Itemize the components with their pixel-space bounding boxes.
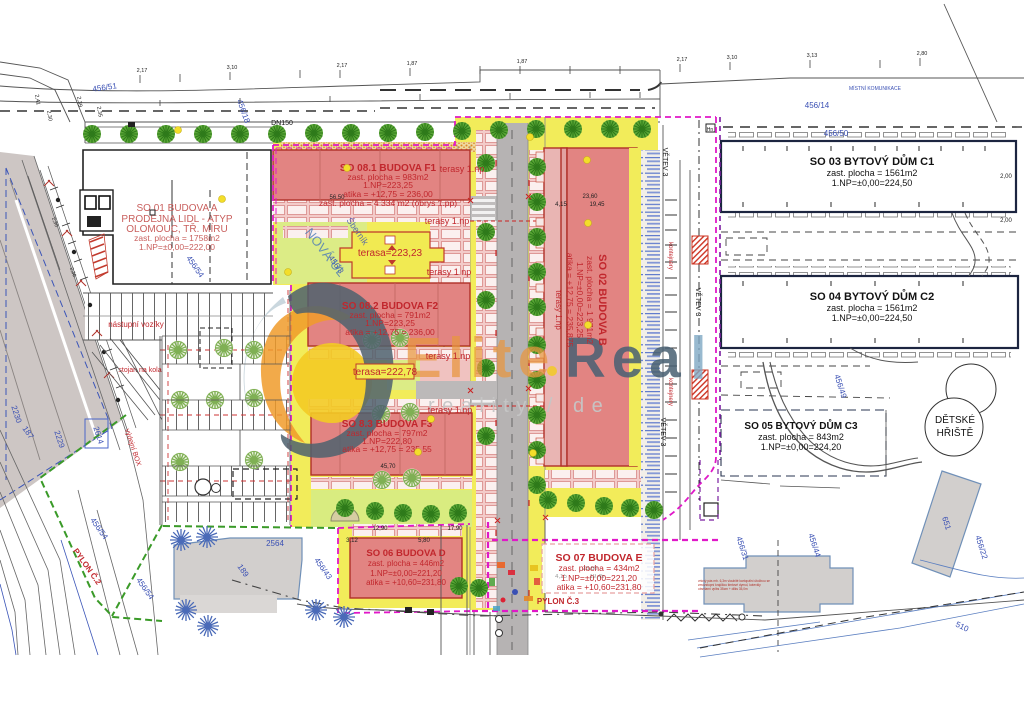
svg-text:3,10: 3,10 (227, 65, 238, 71)
svg-text:nástupní vozíky: nástupní vozíky (108, 320, 164, 329)
svg-text:Hn: Hn (707, 127, 714, 133)
svg-text:2,17: 2,17 (137, 68, 148, 74)
svg-text:3,13: 3,13 (807, 53, 818, 59)
svg-text:1.NP=±0,00=224,50: 1.NP=±0,00=224,50 (832, 313, 913, 323)
svg-text:terasa=223,23: terasa=223,23 (358, 248, 423, 259)
svg-text:5,80: 5,80 (418, 538, 430, 544)
svg-text:2,00: 2,00 (1000, 218, 1012, 224)
svg-text:1.NP=±0,00=224,20: 1.NP=±0,00=224,20 (761, 442, 842, 452)
svg-text:terasy 1.np: terasy 1.np (425, 216, 470, 226)
svg-text:obsvlarní vplbs 35cm + dilks 3: obsvlarní vplbs 35cm + dilks 35,0m (698, 587, 748, 591)
svg-text:zast. plocha = 1561m2: zast. plocha = 1561m2 (827, 303, 918, 313)
svg-text:1.NP=±0,00=224,50: 1.NP=±0,00=224,50 (832, 178, 913, 188)
svg-text:1.NP=±0,00=223,25: 1.NP=±0,00=223,25 (575, 262, 585, 338)
svg-text:56,50: 56,50 (329, 195, 345, 201)
svg-text:zast. plocha = 1561m2: zast. plocha = 1561m2 (827, 168, 918, 178)
svg-text:VĚTEV 3: VĚTEV 3 (659, 418, 668, 447)
svg-text:atika = +12,75 = 236,00: atika = +12,75 = 236,00 (345, 327, 435, 337)
svg-text:23,60: 23,60 (582, 566, 598, 572)
svg-text:45,70: 45,70 (380, 464, 396, 470)
svg-text:12,90: 12,90 (372, 526, 388, 532)
svg-text:SO 02 BUDOVA B: SO 02 BUDOVA B (596, 254, 608, 346)
svg-text:zast. plocha = 446m2: zast. plocha = 446m2 (368, 559, 445, 568)
svg-text:atika = +10,60=231,80: atika = +10,60=231,80 (557, 582, 642, 592)
svg-text:terasy 1.np: terasy 1.np (440, 164, 485, 174)
svg-text:zast. plocha = 843m2: zast. plocha = 843m2 (758, 432, 844, 442)
svg-text:VĚTEV 3: VĚTEV 3 (661, 148, 670, 177)
svg-text:1,87: 1,87 (407, 61, 418, 67)
svg-text:zast. plocha = 434m2: zast. plocha = 434m2 (558, 563, 639, 573)
svg-text:l: l (690, 325, 707, 392)
svg-text:3,10: 3,10 (727, 55, 738, 61)
svg-text:SO 06 BUDOVA D: SO 06 BUDOVA D (366, 548, 445, 559)
svg-text:456/14: 456/14 (805, 101, 830, 110)
svg-text:SO 01 BUDOVA A: SO 01 BUDOVA A (137, 203, 218, 214)
svg-text:VĚTEV 3: VĚTEV 3 (694, 288, 703, 317)
svg-text:2,17: 2,17 (337, 63, 348, 69)
svg-text:PYLON Č.3: PYLON Č.3 (537, 597, 580, 606)
svg-text:kontejnery: kontejnery (667, 242, 673, 270)
svg-text:3,12: 3,12 (346, 538, 358, 544)
svg-text:23,60: 23,60 (582, 194, 598, 200)
svg-text:1,87: 1,87 (517, 59, 528, 65)
svg-text:19,45: 19,45 (589, 202, 605, 208)
svg-text:zast. plocha = 1 971m2: zast. plocha = 1 971m2 (585, 256, 595, 344)
svg-text:2,80: 2,80 (917, 51, 928, 57)
svg-text:19,45: 19,45 (589, 574, 605, 580)
svg-text:stojan na kola: stojan na kola (118, 367, 161, 374)
svg-text:kontejnery: kontejnery (667, 378, 673, 406)
svg-text:SO 05 BYTOVÝ DŮM C3: SO 05 BYTOVÝ DŮM C3 (744, 418, 858, 432)
svg-text:terasy 1 np: terasy 1 np (427, 267, 472, 277)
svg-text:terasa=222,78: terasa=222,78 (353, 367, 418, 378)
svg-text:atika = +10,60=231,80: atika = +10,60=231,80 (366, 578, 446, 587)
svg-text:DĚTSKÉ: DĚTSKÉ (935, 413, 975, 426)
svg-text:4,15: 4,15 (555, 574, 567, 580)
svg-text:SO 04 BYTOVÝ DŮM C2: SO 04 BYTOVÝ DŮM C2 (810, 289, 935, 303)
svg-text:2564: 2564 (266, 539, 284, 548)
svg-text:1.NP=±0,00=221,20: 1.NP=±0,00=221,20 (370, 569, 442, 578)
svg-text:atika = +12,75 = 235,875: atika = +12,75 = 235,875 (565, 253, 575, 348)
svg-text:MÍSTNÍ KOMUNIKACE: MÍSTNÍ KOMUNIKACE (849, 85, 902, 92)
svg-text:HŘIŠTĚ: HŘIŠTĚ (937, 426, 974, 439)
svg-text:1.NP=±0,00=222,00: 1.NP=±0,00=222,00 (139, 242, 215, 252)
svg-text:terasy 1.np: terasy 1.np (554, 290, 563, 330)
svg-text:2,17: 2,17 (677, 57, 688, 63)
svg-text:456/50: 456/50 (824, 129, 849, 138)
svg-text:SO 03 BYTOVÝ DŮM C1: SO 03 BYTOVÝ DŮM C1 (810, 154, 935, 168)
svg-text:terasy 1.np: terasy 1.np (426, 351, 471, 361)
svg-text:DN150: DN150 (271, 120, 293, 127)
svg-text:terasy 1.np: terasy 1.np (428, 405, 473, 415)
svg-text:17,90: 17,90 (447, 526, 463, 532)
svg-text:2,00: 2,00 (1000, 174, 1012, 180)
svg-text:4,15: 4,15 (555, 202, 567, 208)
